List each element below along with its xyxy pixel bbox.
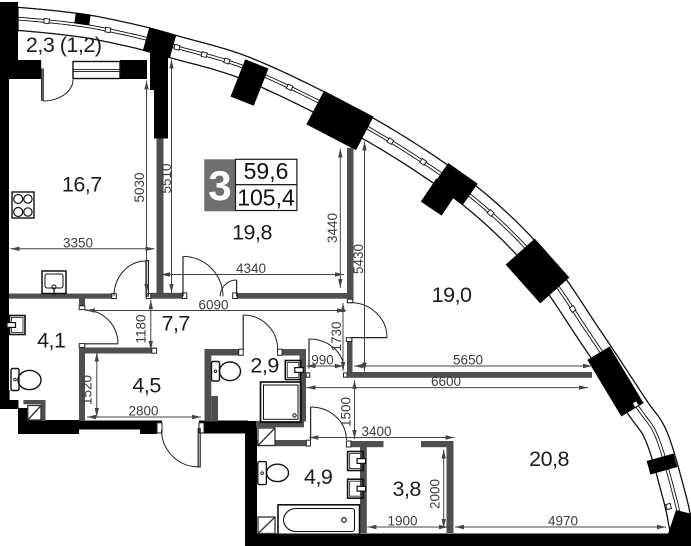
svg-text:7,7: 7,7 <box>162 312 190 336</box>
svg-text:2,3 (1,2): 2,3 (1,2) <box>26 33 102 57</box>
svg-text:5650: 5650 <box>453 353 483 368</box>
svg-text:4,5: 4,5 <box>132 374 161 398</box>
svg-text:5030: 5030 <box>132 172 147 202</box>
svg-text:1900: 1900 <box>387 513 417 528</box>
svg-text:1180: 1180 <box>134 314 149 343</box>
svg-text:59,6: 59,6 <box>244 158 289 184</box>
svg-text:1520: 1520 <box>80 375 95 405</box>
svg-text:1500: 1500 <box>339 397 354 427</box>
svg-text:3: 3 <box>208 162 231 209</box>
svg-text:4,1: 4,1 <box>37 329 65 353</box>
svg-text:3440: 3440 <box>325 213 340 243</box>
svg-text:2800: 2800 <box>128 404 158 419</box>
svg-text:6090: 6090 <box>198 297 228 312</box>
svg-text:4340: 4340 <box>236 261 266 276</box>
svg-text:2000: 2000 <box>427 479 442 509</box>
svg-text:1730: 1730 <box>329 321 344 351</box>
svg-text:6600: 6600 <box>431 374 461 389</box>
svg-text:19,0: 19,0 <box>432 283 472 307</box>
svg-text:990: 990 <box>311 352 334 367</box>
svg-text:3350: 3350 <box>63 236 93 251</box>
svg-text:5510: 5510 <box>159 163 174 193</box>
svg-text:3,8: 3,8 <box>393 477 422 501</box>
svg-text:19,8: 19,8 <box>232 221 272 245</box>
svg-text:5430: 5430 <box>351 244 366 274</box>
svg-text:3400: 3400 <box>361 424 391 439</box>
svg-text:4970: 4970 <box>548 513 578 528</box>
svg-text:2,9: 2,9 <box>250 354 278 378</box>
svg-text:4,9: 4,9 <box>304 465 332 489</box>
svg-text:20,8: 20,8 <box>529 447 569 471</box>
svg-text:105,4: 105,4 <box>237 185 295 211</box>
svg-text:16,7: 16,7 <box>62 173 102 197</box>
